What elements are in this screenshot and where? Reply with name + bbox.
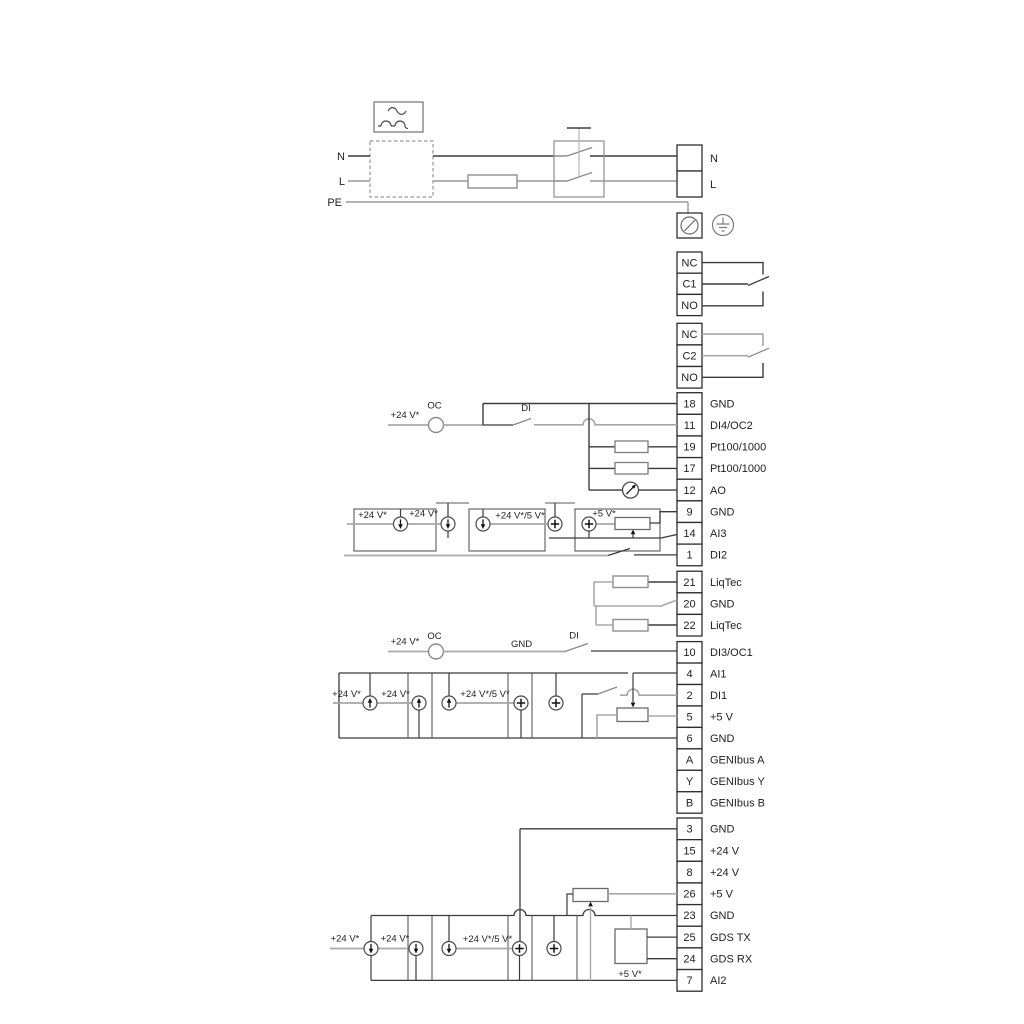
label-n-in: N xyxy=(337,151,345,163)
ai1-v24-label2: +24 V* xyxy=(381,689,410,700)
terminal-6-num: 6 xyxy=(686,733,692,745)
mains-supply-box xyxy=(374,102,423,132)
ai3-v24-label2: +24 V* xyxy=(409,509,438,520)
power-section: N L PE N L xyxy=(327,102,733,238)
di4-signal-line xyxy=(534,419,677,425)
terminal-26-label: +5 V xyxy=(710,889,734,901)
terminal-b-label: GENIbus B xyxy=(710,797,765,809)
terminal-22-num: 22 xyxy=(683,620,695,632)
di3-oc-label: OC xyxy=(427,631,441,642)
ai1-pot-wiper-arrow xyxy=(631,703,636,708)
terminal-22-label: LiqTec xyxy=(710,620,742,632)
di4-switch-blade xyxy=(513,419,531,426)
di3-gnd-label: GND xyxy=(511,639,532,650)
terminal-10-num: 10 xyxy=(683,647,695,659)
terminal-21-label: LiqTec xyxy=(710,577,742,589)
io3-terminal-block: 3 15 8 26 23 25 24 7 GND +24 V +24 V +5 … xyxy=(677,818,753,991)
terminal-24-label: GDS RX xyxy=(710,954,753,966)
terminal-1-label: DI2 xyxy=(710,550,727,562)
pt100-resistor-2 xyxy=(615,463,648,475)
liqtec-loop-wires xyxy=(594,582,677,625)
filter-dashed-box xyxy=(370,141,433,197)
label-pe: PE xyxy=(327,197,342,209)
terminal-2-label: DI1 xyxy=(710,690,727,702)
gds-v5-label: +5 V* xyxy=(618,969,642,980)
terminal-b-num: B xyxy=(686,797,693,809)
terminal-block-nl xyxy=(677,145,702,197)
ai1-v24-label1: +24 V* xyxy=(332,689,361,700)
liqtec-terminal-block: 21 20 22 LiqTec GND LiqTec xyxy=(594,571,742,636)
gnd3-wire xyxy=(520,829,677,942)
ai3-potentiometer xyxy=(615,518,650,530)
liqtec-resistor-1 xyxy=(613,576,648,588)
terminal-6-label: GND xyxy=(710,733,735,745)
relay1-nc: NC xyxy=(682,257,698,269)
terminal-12-num: 12 xyxy=(683,485,695,497)
wiring-diagram: N L PE N L NC C1 NO NC C2 NO 18 xyxy=(0,0,1024,1024)
ai2-v24-label2: +24 V* xyxy=(381,934,410,945)
ai3-signal-group: +24 V* +24 V* +24 V*/5 V* +5 V* xyxy=(344,503,677,556)
terminal-17-num: 17 xyxy=(683,463,695,475)
terminal-y-label: GENIbus Y xyxy=(710,776,765,788)
relay2-no: NO xyxy=(681,372,698,384)
ai3-v24-label1: +24 V* xyxy=(358,510,387,521)
terminal-19-label: Pt100/1000 xyxy=(710,442,766,454)
terminal-2-num: 2 xyxy=(686,690,692,702)
ai3-v5-label: +5 V* xyxy=(592,509,616,520)
di1-switch-blade xyxy=(598,687,617,694)
terminal-5-num: 5 xyxy=(686,712,692,724)
terminal-5-label: +5 V xyxy=(710,712,734,724)
terminal-14-label: AI3 xyxy=(710,528,727,540)
pt100-resistor-1 xyxy=(615,441,648,453)
wire-pe xyxy=(346,202,688,213)
terminal-7-num: 7 xyxy=(686,975,692,987)
di4-di-label: DI xyxy=(521,403,531,414)
ai3-gnd-out xyxy=(650,512,677,523)
gds-tx-rx-wires xyxy=(647,937,677,959)
relay2-section: NC C2 NO xyxy=(677,323,769,388)
relay2-wires-gray xyxy=(702,334,763,356)
terminal-25-num: 25 xyxy=(683,932,695,944)
terminal-9-label: GND xyxy=(710,507,735,519)
terminal-1-num: 1 xyxy=(686,550,692,562)
diagram-canvas: N L PE N L NC C1 NO NC C2 NO 18 xyxy=(0,0,1024,1024)
di4-v24-label: +24 V* xyxy=(391,410,420,421)
ai1-v24-5-label: +24 V*/5 V* xyxy=(460,689,510,700)
terminal-18-label: GND xyxy=(710,398,735,410)
di1-out xyxy=(620,689,677,695)
terminal-4-num: 4 xyxy=(686,669,692,681)
switch-stubs xyxy=(554,156,567,181)
di2-switch-blade xyxy=(608,549,630,556)
ai3-pot-wiper-arrow xyxy=(631,530,636,535)
ai2-top-bus xyxy=(371,910,677,916)
di3-di-label: DI xyxy=(569,631,579,642)
liqtec-resistor-2 xyxy=(613,620,648,632)
io1-terminal-block: 18 11 19 17 12 9 14 1 GND DI4/OC2 Pt100/… xyxy=(677,393,766,566)
ai3-v24-5-label: +24 V*/5 V* xyxy=(495,511,545,522)
di4-circuit: +24 V* OC DI xyxy=(388,401,677,499)
di1-bracket xyxy=(582,694,598,738)
relay2-nc: NC xyxy=(682,329,698,341)
terminal-3-label: GND xyxy=(710,824,735,836)
relay1-c1: C1 xyxy=(682,279,696,291)
terminal-11-label: DI4/OC2 xyxy=(710,420,753,432)
terminal-a-label: GENIbus A xyxy=(710,754,765,766)
terminal-20-label: GND xyxy=(710,598,735,610)
label-n-out: N xyxy=(710,153,718,165)
earth-ground-icon xyxy=(713,215,734,236)
terminal-7-label: AI2 xyxy=(710,975,727,987)
label-l-in: L xyxy=(339,176,345,188)
terminal-4-label: AI1 xyxy=(710,669,727,681)
gds-sensor-box xyxy=(615,929,647,964)
terminal-l xyxy=(677,171,702,197)
ai2-pot-wiper-arrow xyxy=(588,902,593,907)
fuse xyxy=(468,175,517,188)
relay1-contact-blade xyxy=(748,277,769,286)
io2-terminal-block: 10 4 2 5 6 A Y B DI3/OC1 AI1 DI1 +5 V GN… xyxy=(677,642,765,814)
ai3-signal-out xyxy=(549,535,677,539)
ai1-signal-group: +24 V* +24 V* +24 V*/5 V* xyxy=(332,673,677,738)
di4-gnd-line xyxy=(483,404,677,426)
label-l-out: L xyxy=(710,179,716,191)
terminal-21-num: 21 xyxy=(683,577,695,589)
terminal-y-num: Y xyxy=(686,776,694,788)
terminal-23-label: GND xyxy=(710,910,735,922)
ai2-v24-label1: +24 V* xyxy=(331,934,360,945)
terminal-3-num: 3 xyxy=(686,824,692,836)
terminal-24-num: 24 xyxy=(683,954,695,966)
di4-oc-circle xyxy=(429,418,444,433)
relay2-no-wire xyxy=(702,363,763,377)
terminal-18-num: 18 xyxy=(683,398,695,410)
terminal-23-num: 23 xyxy=(683,910,695,922)
terminal-14-num: 14 xyxy=(683,528,695,540)
terminal-11-num: 11 xyxy=(684,420,695,432)
terminal-n xyxy=(677,145,702,171)
di3-switch-blade xyxy=(565,644,588,652)
di3-oc-circle xyxy=(429,644,444,659)
terminal-17-label: Pt100/1000 xyxy=(710,463,766,475)
ai2-pot-gnd-wire xyxy=(567,894,573,916)
terminal-12-label: AO xyxy=(710,485,726,497)
di3-v24-label: +24 V* xyxy=(391,637,420,648)
terminal-15-num: 15 xyxy=(683,845,695,857)
relay2-c2: C2 xyxy=(682,351,696,363)
di4-oc-label: OC xyxy=(427,401,441,412)
terminal-8-label: +24 V xyxy=(710,867,740,879)
terminal-a-num: A xyxy=(686,754,694,766)
di3-circuit: +24 V* OC GND DI xyxy=(388,631,677,660)
relay2-contact-blade xyxy=(748,348,769,357)
ai1-potentiometer xyxy=(617,708,648,722)
terminal-20-num: 20 xyxy=(683,598,695,610)
relay1-section: NC C1 NO xyxy=(677,252,769,316)
ai2-potentiometer xyxy=(573,889,608,902)
ai1-separators xyxy=(408,673,532,738)
relay1-wires xyxy=(702,263,763,306)
terminal-9-num: 9 xyxy=(686,507,692,519)
terminal-10-label: DI3/OC1 xyxy=(710,647,753,659)
terminal-26-num: 26 xyxy=(683,889,695,901)
terminal-15-label: +24 V xyxy=(710,845,740,857)
terminal-19-num: 19 xyxy=(683,442,695,454)
relay1-no: NO xyxy=(681,300,698,312)
ai1-pot-gnd-wire xyxy=(597,715,617,738)
terminal-8-num: 8 xyxy=(686,867,692,879)
terminal-25-label: GDS TX xyxy=(710,932,751,944)
ai2-v24-5-label: +24 V*/5 V* xyxy=(463,934,513,945)
ai2-signal-group: +24 V* +24 V* +24 V*/5 V* +5 V* xyxy=(330,829,677,981)
